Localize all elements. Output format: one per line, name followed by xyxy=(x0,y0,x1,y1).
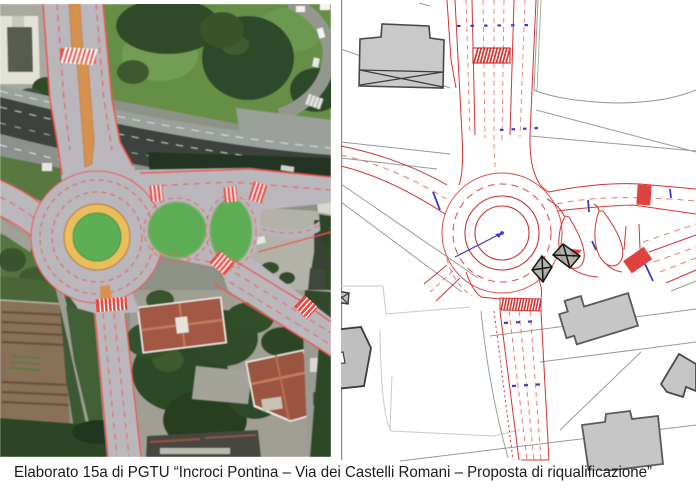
svg-text:Elaborato 15a di PGTU “Incroci: Elaborato 15a di PGTU “Incroci Pontina –… xyxy=(14,464,652,481)
